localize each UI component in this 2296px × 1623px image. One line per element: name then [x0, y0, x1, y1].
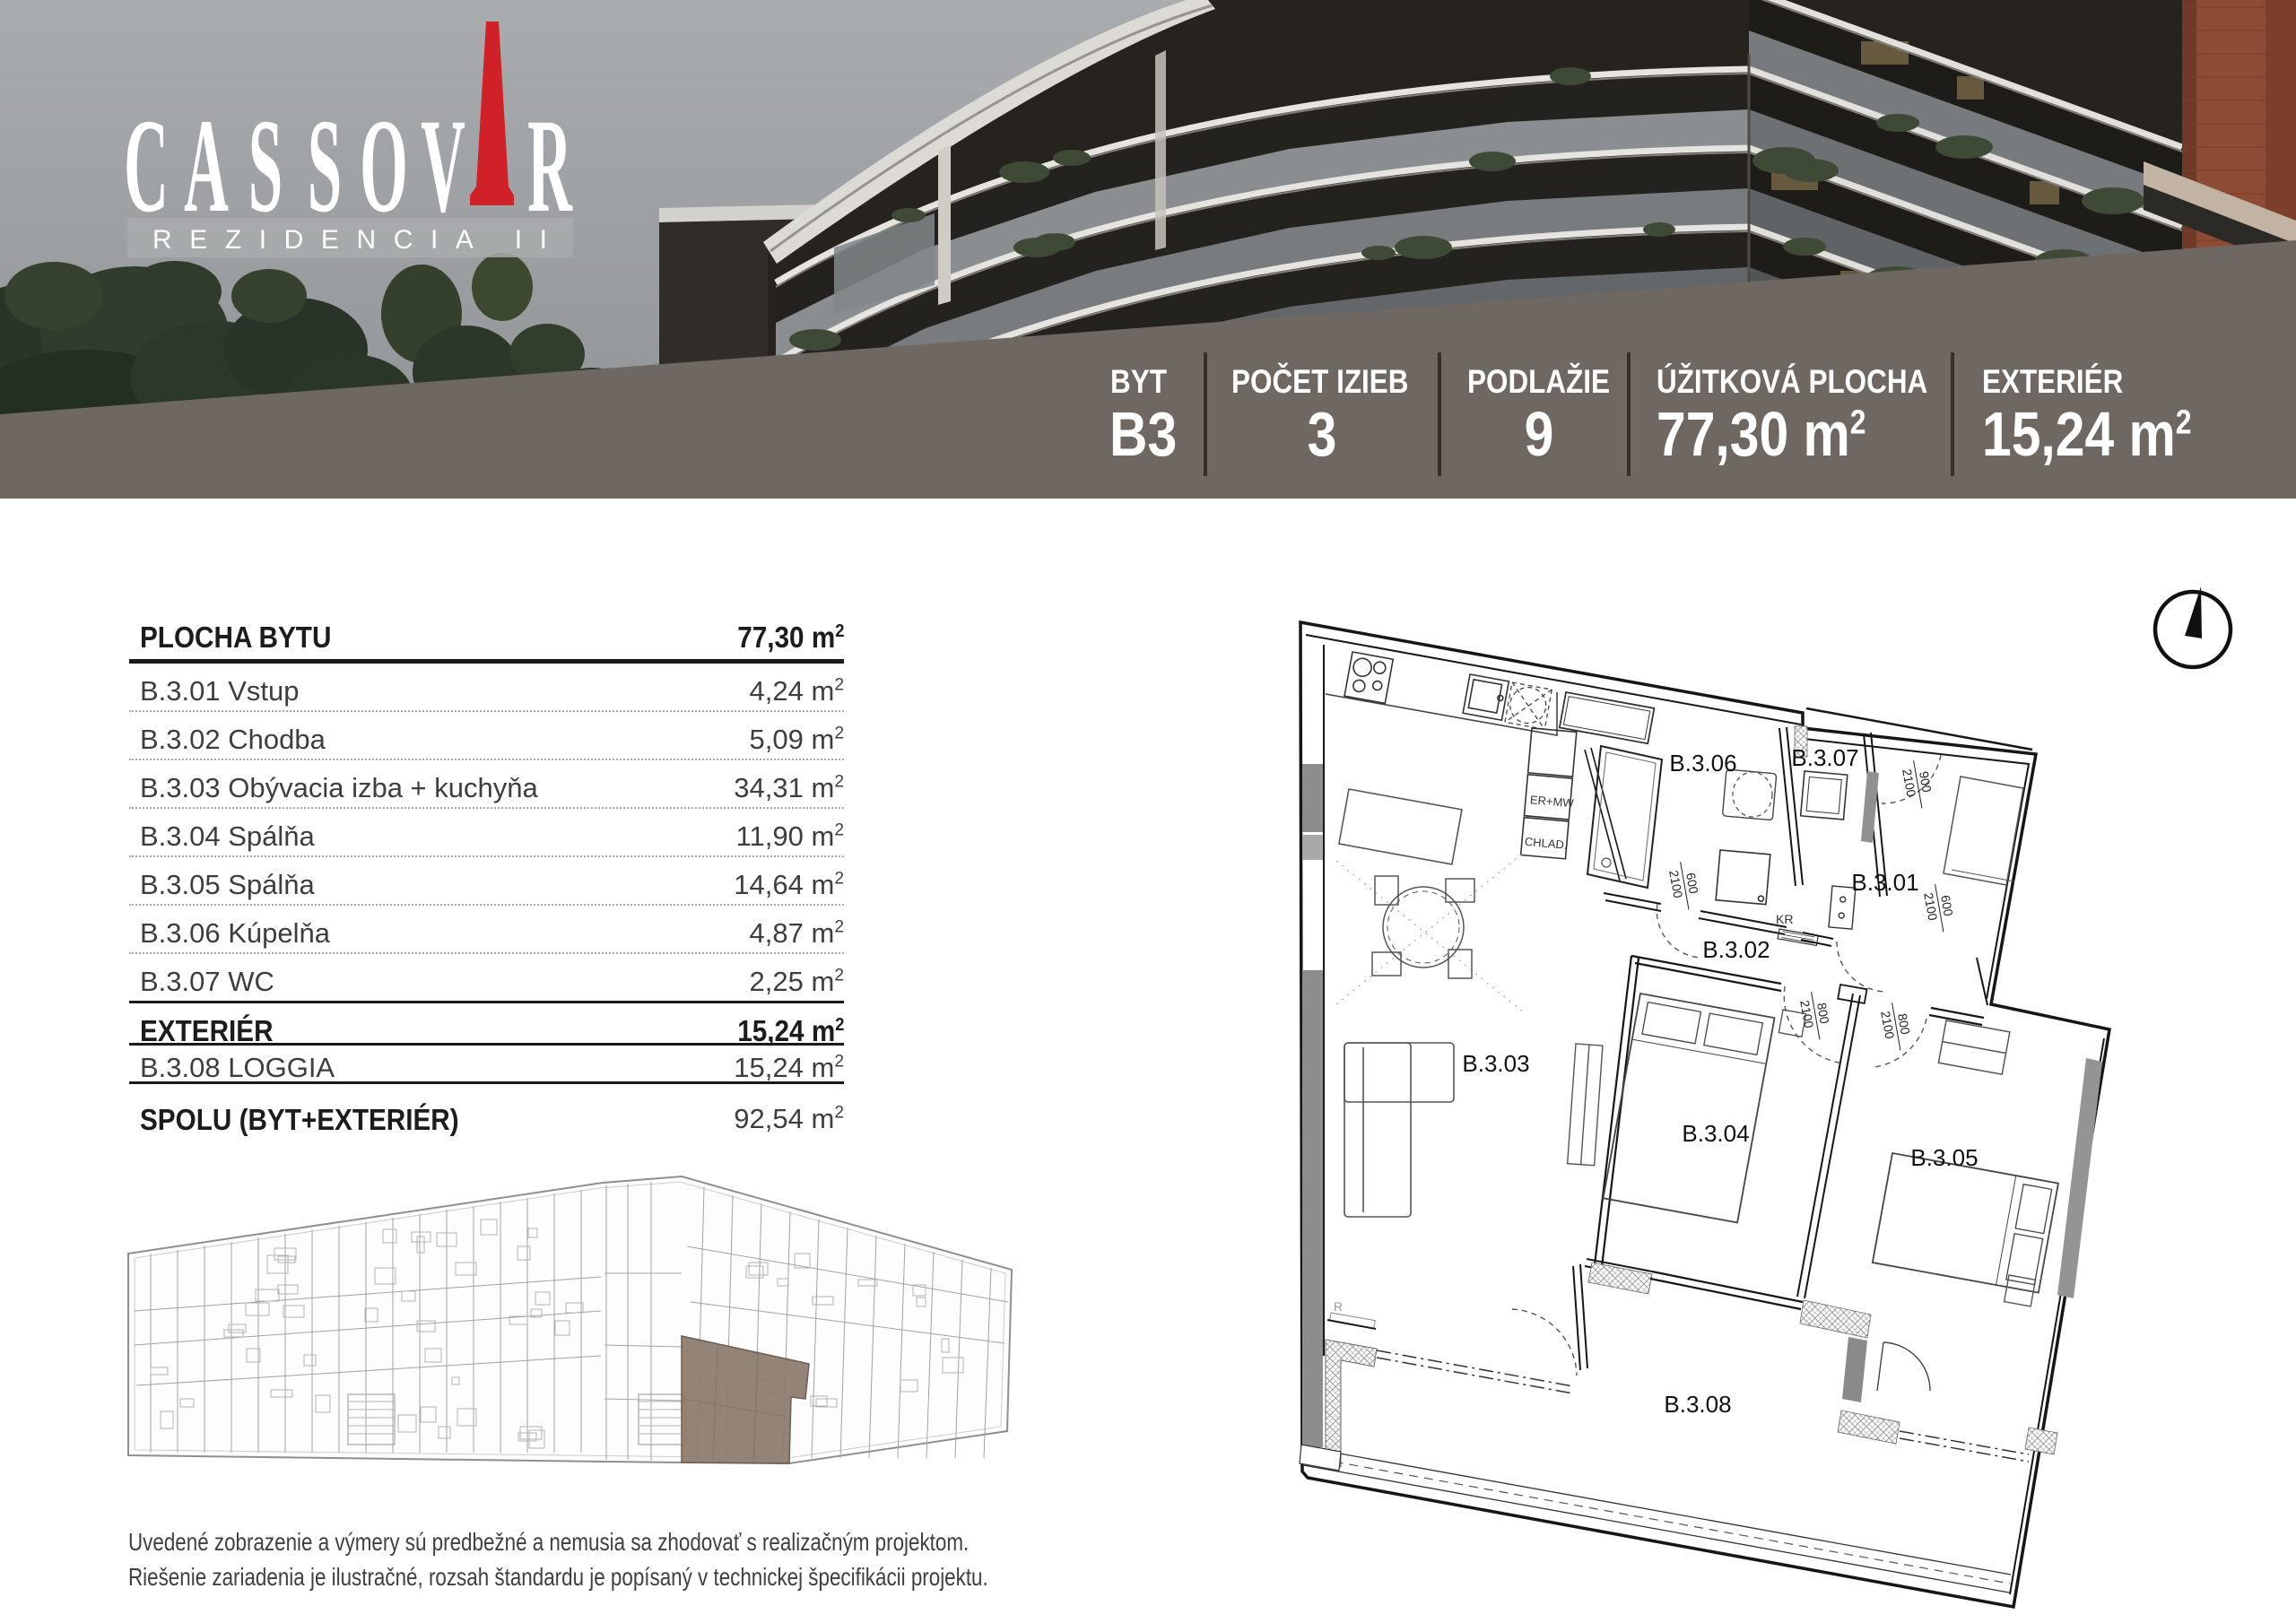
svg-text:ER+MW: ER+MW	[1529, 793, 1575, 810]
svg-text:B.3.02: B.3.02	[1702, 936, 1770, 963]
svg-text:KR: KR	[1776, 912, 1793, 926]
svg-text:B.3.05: B.3.05	[1910, 1144, 1978, 1171]
svg-text:B.3.01: B.3.01	[1851, 869, 1918, 896]
svg-text:600: 600	[1938, 894, 1956, 917]
svg-text:B.3.06: B.3.06	[1669, 750, 1736, 777]
svg-text:800: 800	[1814, 1002, 1832, 1025]
svg-text:600: 600	[1683, 872, 1701, 895]
svg-text:B.3.04: B.3.04	[1682, 1120, 1749, 1147]
svg-text:B.3.08: B.3.08	[1664, 1391, 1731, 1418]
svg-text:B.3.03: B.3.03	[1462, 1050, 1529, 1077]
svg-text:800: 800	[1895, 1012, 1913, 1036]
svg-text:R: R	[1334, 1299, 1343, 1314]
svg-text:B.3.07: B.3.07	[1791, 744, 1858, 771]
svg-text:CHLAD.: CHLAD.	[1524, 835, 1568, 852]
